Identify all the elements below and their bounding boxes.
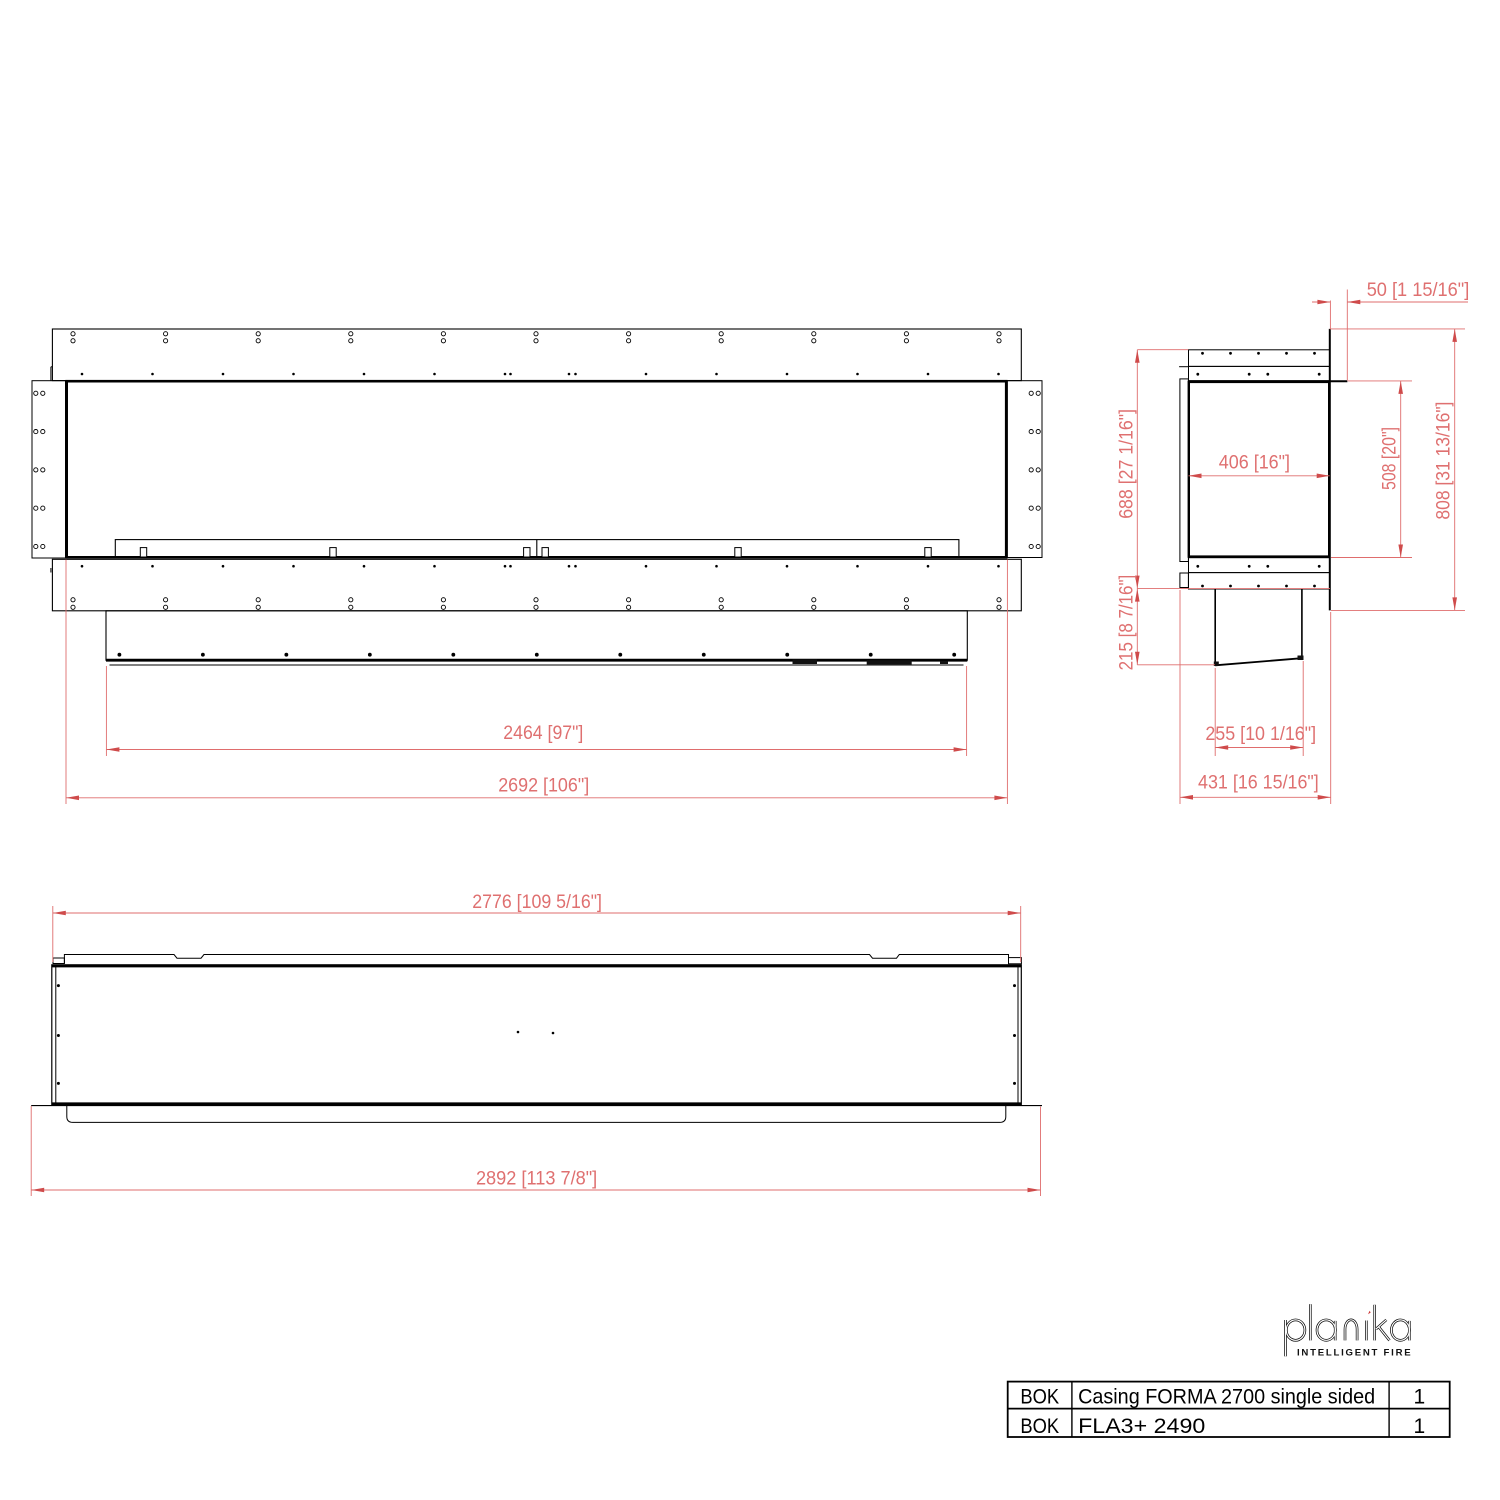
svg-text:BOK: BOK — [1020, 1386, 1059, 1409]
svg-text:FLA3+ 2490: FLA3+ 2490 — [1078, 1415, 1205, 1438]
svg-text:2464 [97"]: 2464 [97"] — [503, 722, 583, 744]
svg-text:215 [8 7/16"]: 215 [8 7/16"] — [1115, 575, 1137, 671]
svg-text:Casing FORMA 2700 single sided: Casing FORMA 2700 single sided — [1078, 1386, 1375, 1409]
svg-text:BOK: BOK — [1020, 1415, 1059, 1438]
svg-text:431 [16 15/16"]: 431 [16 15/16"] — [1198, 772, 1319, 794]
svg-text:406 [16"]: 406 [16"] — [1219, 452, 1290, 474]
svg-text:INTELLIGENT FIRE: INTELLIGENT FIRE — [1297, 1347, 1412, 1358]
svg-text:688 [27 1/16"]: 688 [27 1/16"] — [1115, 409, 1137, 519]
svg-text:1: 1 — [1414, 1415, 1426, 1438]
svg-text:2776 [109 5/16"]: 2776 [109 5/16"] — [472, 891, 602, 913]
svg-text:508 [20"]: 508 [20"] — [1379, 427, 1401, 490]
svg-text:808 [31 13/16"]: 808 [31 13/16"] — [1433, 402, 1455, 520]
svg-text:255 [10 1/16"]: 255 [10 1/16"] — [1205, 723, 1316, 745]
svg-text:2892 [113 7/8"]: 2892 [113 7/8"] — [476, 1168, 597, 1190]
svg-text:50 [1 15/16"]: 50 [1 15/16"] — [1367, 279, 1470, 301]
svg-text:1: 1 — [1414, 1386, 1426, 1409]
svg-text:2692 [106"]: 2692 [106"] — [498, 775, 589, 797]
